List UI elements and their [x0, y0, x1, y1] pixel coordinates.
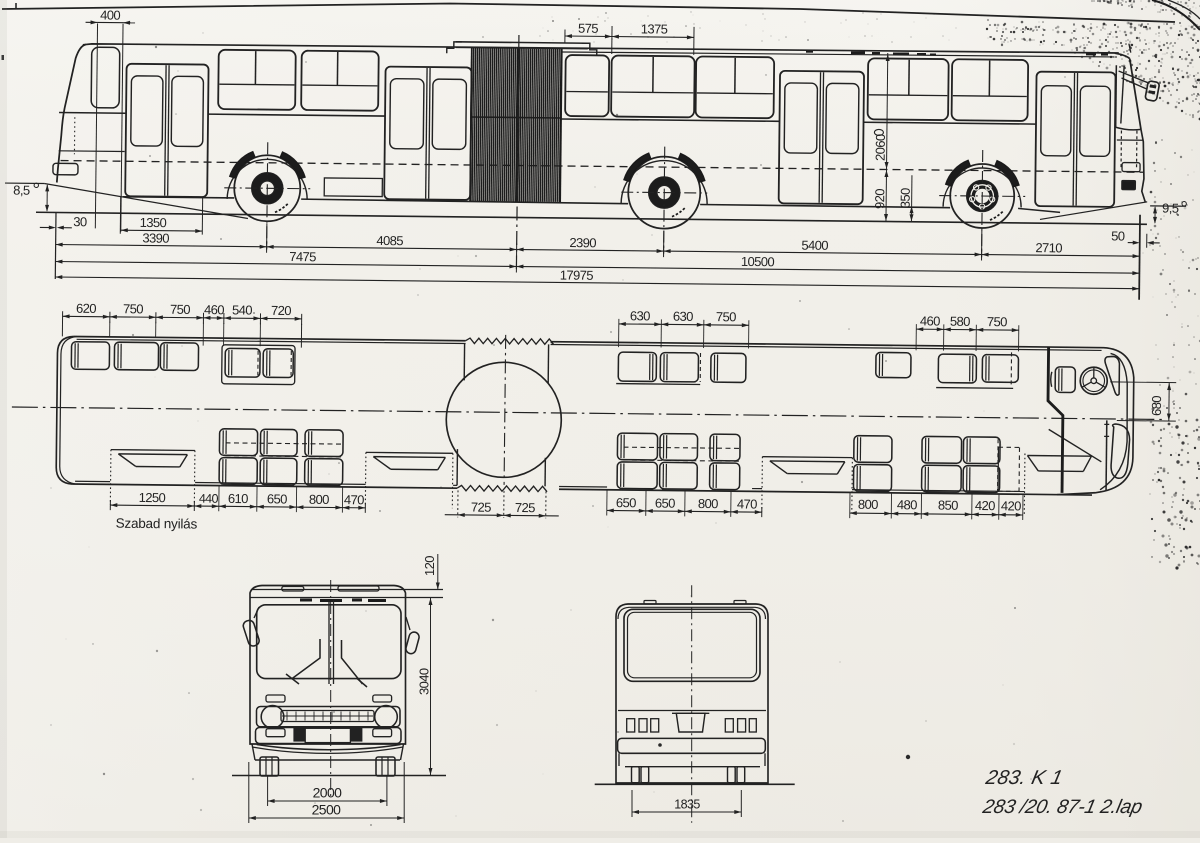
- svg-text:30: 30: [73, 214, 87, 229]
- svg-text:650: 650: [655, 495, 675, 510]
- svg-text:540: 540: [232, 302, 252, 317]
- svg-text:650: 650: [267, 491, 287, 506]
- svg-text:750: 750: [716, 309, 736, 324]
- svg-text:1835: 1835: [674, 798, 700, 812]
- svg-text:720: 720: [271, 303, 291, 318]
- svg-text:50: 50: [1111, 228, 1125, 243]
- svg-text:9,5: 9,5: [1162, 200, 1179, 215]
- svg-text:750: 750: [170, 302, 190, 317]
- svg-text:725: 725: [471, 500, 491, 515]
- svg-text:850: 850: [938, 498, 958, 513]
- svg-text:620: 620: [76, 301, 96, 316]
- svg-text:920: 920: [872, 189, 887, 209]
- svg-text:283 /20. 87-1 2.lap: 283 /20. 87-1 2.lap: [980, 796, 1145, 818]
- svg-text:580: 580: [950, 314, 970, 329]
- svg-text:630: 630: [630, 308, 650, 323]
- svg-text:750: 750: [987, 314, 1007, 329]
- svg-text:800: 800: [309, 492, 329, 507]
- svg-text:10500: 10500: [741, 254, 775, 269]
- svg-text:460: 460: [920, 313, 940, 328]
- svg-text:800: 800: [858, 497, 878, 512]
- svg-text:725: 725: [515, 500, 535, 515]
- svg-text:3040: 3040: [417, 668, 432, 695]
- svg-text:680: 680: [1149, 396, 1164, 416]
- svg-text:460: 460: [204, 302, 224, 317]
- svg-text:17975: 17975: [560, 267, 594, 282]
- svg-text:440: 440: [199, 492, 219, 506]
- svg-text:8,5: 8,5: [13, 183, 30, 198]
- svg-text:1250: 1250: [139, 490, 166, 505]
- svg-text:420: 420: [975, 498, 995, 513]
- svg-text:650: 650: [616, 495, 636, 510]
- svg-text:420: 420: [1001, 498, 1021, 513]
- svg-text:2500: 2500: [312, 802, 342, 818]
- svg-text:120: 120: [422, 556, 437, 576]
- svg-text:1350: 1350: [140, 215, 167, 230]
- svg-text:3390: 3390: [142, 230, 169, 245]
- svg-text:480: 480: [897, 497, 917, 512]
- svg-text:2060: 2060: [873, 134, 888, 161]
- svg-text:750: 750: [123, 301, 143, 316]
- svg-text:2390: 2390: [569, 235, 596, 250]
- svg-text:350: 350: [898, 188, 913, 208]
- svg-text:7475: 7475: [289, 249, 316, 264]
- svg-text:1375: 1375: [641, 21, 668, 36]
- svg-text:610: 610: [228, 491, 248, 506]
- svg-text:400: 400: [100, 7, 120, 22]
- svg-text:470: 470: [344, 492, 364, 507]
- svg-text:5400: 5400: [801, 238, 828, 253]
- svg-text:4085: 4085: [376, 233, 403, 248]
- svg-text:Szabad nyilás: Szabad nyilás: [116, 516, 198, 532]
- svg-text:2000: 2000: [313, 785, 343, 801]
- svg-text:800: 800: [698, 496, 718, 511]
- svg-text:283. K 1: 283. K 1: [983, 767, 1065, 789]
- svg-text:2710: 2710: [1035, 240, 1062, 255]
- svg-text:630: 630: [673, 309, 693, 324]
- svg-text:470: 470: [737, 496, 757, 511]
- svg-text:575: 575: [578, 21, 598, 36]
